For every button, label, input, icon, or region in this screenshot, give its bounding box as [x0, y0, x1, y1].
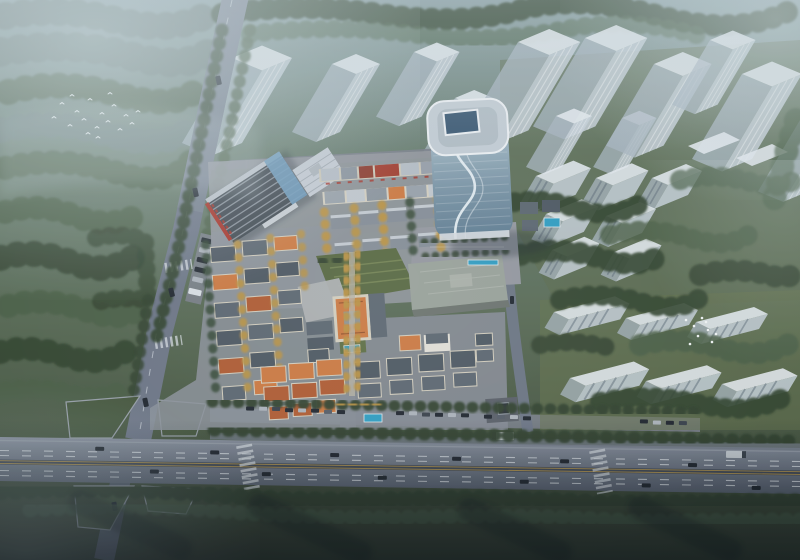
masterplan-rendering [0, 0, 800, 560]
aerial-rendering-canvas [0, 0, 800, 560]
cool-tint [0, 0, 800, 560]
atmosphere [0, 0, 800, 560]
